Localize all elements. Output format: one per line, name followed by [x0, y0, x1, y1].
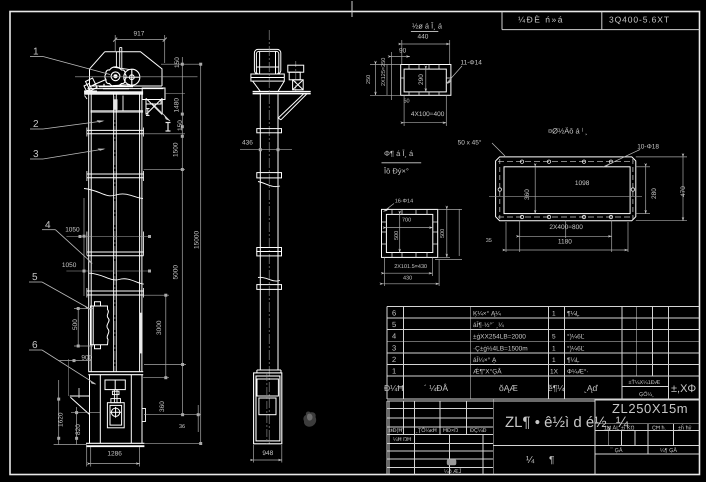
svg-text:˻Ąď: ˻Ąď — [584, 383, 599, 393]
svg-text:ZL250X15m: ZL250X15m — [612, 401, 688, 416]
svg-text:5: 5 — [552, 334, 556, 341]
svg-text:±ĥ ħŷ: ±ĥ ħŷ — [678, 425, 692, 432]
svg-text:2X400=800: 2X400=800 — [549, 224, 583, 231]
svg-text:1050: 1050 — [62, 262, 77, 269]
svg-text:360: 360 — [159, 401, 166, 412]
svg-text:Đ¼Ħ: Đ¼Ħ — [384, 383, 404, 393]
svg-text:500: 500 — [440, 229, 446, 238]
svg-text:1180: 1180 — [558, 239, 572, 246]
svg-text:11-Φ14: 11-Φ14 — [461, 60, 483, 67]
svg-text:36: 36 — [179, 424, 185, 430]
svg-text:1Ħ ĀĻ ±ĩ ĶŊ: 1Ħ ĀĻ ±ĩ ĶŊ — [604, 425, 635, 432]
svg-text:Ķ¼×° Ą¼: Ķ¼×° Ą¼ — [473, 311, 501, 318]
svg-text:áĪ¶·½°´ ¸¼: áĪ¶·½°´ ¸¼ — [473, 321, 504, 329]
svg-text:ÇĦ ħ¸: ÇĦ ħ¸ — [652, 426, 667, 432]
svg-text:470: 470 — [680, 186, 687, 197]
svg-text:±Ť¼X¼1ĐÆ: ±Ť¼X¼1ĐÆ — [629, 379, 661, 386]
svg-text:1500: 1500 — [173, 142, 180, 157]
svg-text:3000: 3000 — [156, 320, 163, 335]
svg-text:±,XΦ: ±,XΦ — [671, 383, 696, 395]
svg-text:1X: 1X — [550, 369, 559, 376]
svg-text:¼: ¼ — [526, 455, 535, 466]
svg-text:1: 1 — [552, 311, 556, 318]
svg-text:1: 1 — [392, 367, 396, 376]
svg-text:±ŧĐ(Ħ): ±ŧĐ(Ħ) — [388, 428, 404, 434]
svg-text:½ø á Ī¸ á: ½ø á Ī¸ á — [412, 22, 443, 31]
svg-text:5000: 5000 — [173, 265, 180, 280]
svg-text:50 x 45°: 50 x 45° — [458, 140, 482, 147]
svg-text:¼¶ ĢÅ: ¼¶ ĢÅ — [660, 447, 677, 454]
svg-text:430: 430 — [403, 276, 412, 282]
svg-text:948: 948 — [262, 450, 273, 457]
svg-text:Īō Đý×°: Īō Đý×° — [384, 167, 409, 176]
svg-text:436: 436 — [242, 140, 253, 147]
svg-text:·Ç±ġ½4LB=1500m: ·Ç±ġ½4LB=1500m — [473, 345, 528, 352]
svg-text:1: 1 — [552, 345, 556, 352]
svg-text:5: 5 — [32, 272, 38, 283]
svg-text:16-Φ14: 16-Φ14 — [395, 199, 413, 205]
svg-text:35: 35 — [486, 238, 492, 244]
svg-text:ĕ¶¼: ĕ¶¼ — [548, 383, 565, 393]
svg-text:500: 500 — [394, 231, 400, 240]
svg-text:917: 917 — [134, 31, 145, 38]
svg-text:440: 440 — [418, 34, 429, 41]
svg-text:150: 150 — [177, 120, 184, 131]
svg-text:1: 1 — [552, 357, 556, 364]
svg-text:¤Ø½Äō á ˡ ¸: ¤Ø½Äō á ˡ ¸ — [548, 127, 588, 136]
svg-text:¶: ¶ — [549, 455, 554, 466]
svg-text:2X125=250: 2X125=250 — [381, 58, 387, 86]
svg-text:Φ¶ á Ī¸ á: Φ¶ á Ī¸ á — [384, 149, 414, 158]
svg-text:¼ĐÈ ń»á: ¼ĐÈ ń»á — [518, 15, 564, 25]
svg-text:¶¼Ļ: ¶¼Ļ — [567, 357, 580, 364]
svg-text:´ ¼ĐÅ: ´ ¼ĐÅ — [424, 383, 448, 393]
svg-text:4: 4 — [392, 332, 396, 341]
svg-text:15000: 15000 — [194, 231, 201, 249]
svg-text:Ǽ¶"X°ĢÅ: Ǽ¶"X°ĢÅ — [473, 368, 502, 376]
svg-text:±ġXX254LB=2000: ±ġXX254LB=2000 — [473, 334, 526, 341]
svg-text:3: 3 — [392, 343, 396, 352]
svg-text:áĪ¼×° Ḁ: áĪ¼×° Ḁ — [473, 356, 497, 364]
svg-text:250: 250 — [366, 75, 372, 84]
svg-text:Ф¼Æ°·: Ф¼Æ°· — [567, 369, 589, 376]
svg-text:1098: 1098 — [575, 180, 590, 187]
svg-text:¶¼Ļ: ¶¼Ļ — [567, 311, 580, 318]
svg-text:ŏĄÆ: ŏĄÆ — [499, 383, 518, 393]
svg-text:6: 6 — [392, 309, 396, 318]
svg-text:3: 3 — [33, 149, 39, 160]
svg-text:4X100=400: 4X100=400 — [411, 111, 445, 118]
svg-text:2: 2 — [33, 119, 39, 130]
svg-text:¼Ħ ŊĦ: ¼Ħ ŊĦ — [393, 437, 411, 443]
svg-text:10-Φ18: 10-Φ18 — [637, 143, 659, 150]
svg-text:90: 90 — [399, 48, 407, 55]
svg-text:ĦĐ×Ŋ: ĦĐ×Ŋ — [443, 428, 458, 434]
svg-text:700: 700 — [402, 218, 411, 224]
svg-text:150: 150 — [174, 57, 181, 68]
svg-text:290: 290 — [418, 74, 425, 85]
svg-text:1: 1 — [33, 47, 39, 58]
svg-text:¼ŏ ÆĴ: ¼ŏ ÆĴ — [444, 468, 462, 475]
svg-text:°)¼6Ľ: °)¼6Ľ — [567, 345, 585, 352]
svg-text:5: 5 — [392, 320, 396, 329]
svg-text:2X101.5=430: 2X101.5=430 — [394, 264, 427, 270]
svg-text:2: 2 — [392, 355, 396, 364]
svg-text:6: 6 — [32, 340, 38, 351]
svg-text:1050: 1050 — [65, 227, 80, 234]
svg-text:280: 280 — [651, 188, 658, 199]
svg-text:ĐÇ¼Đ: ĐÇ¼Đ — [470, 428, 487, 434]
svg-text:ĢŐ¼¸: ĢŐ¼¸ — [639, 391, 654, 398]
svg-text:1286: 1286 — [107, 451, 122, 458]
svg-text:1480: 1480 — [174, 98, 181, 113]
svg-text:°)¼6Ľ: °)¼6Ľ — [567, 334, 585, 341]
svg-text:¯ ĢÅ: ¯ ĢÅ — [609, 447, 623, 454]
svg-text:360: 360 — [524, 189, 531, 200]
svg-text:3Q400-5.6XT: 3Q400-5.6XT — [609, 15, 670, 25]
svg-text:¸ŢŌ¼ĸĦ: ¸ŢŌ¼ĸĦ — [416, 427, 437, 434]
